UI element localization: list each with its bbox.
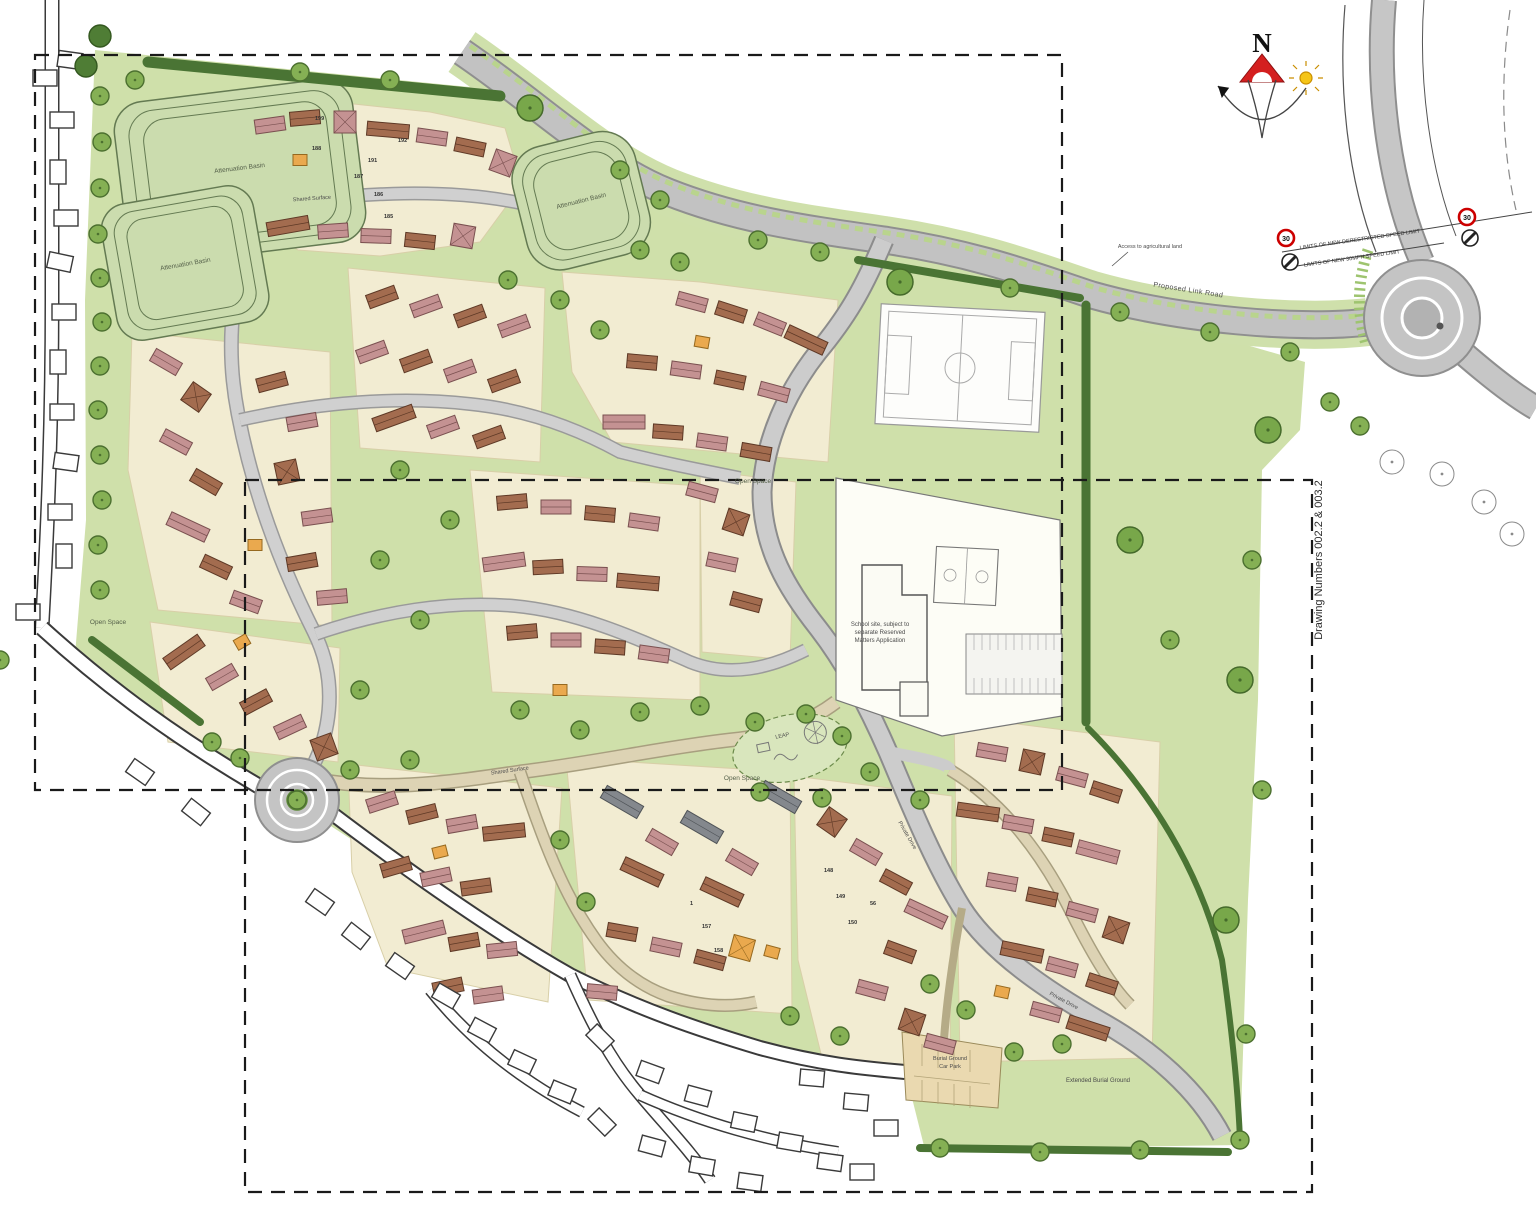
main-roundabout xyxy=(1364,260,1480,376)
svg-text:185: 185 xyxy=(384,214,393,220)
svg-text:188: 188 xyxy=(312,146,321,152)
school-car-park xyxy=(966,634,1062,694)
svg-text:186: 186 xyxy=(374,192,383,198)
site-plan-drawing: Attenuation Basin Attenuation Basin Atte… xyxy=(0,0,1536,1212)
school-note-line1: School site, subject to xyxy=(851,622,910,628)
burial-car-park-line2: Car Park xyxy=(939,1064,961,1070)
svg-text:157: 157 xyxy=(702,924,711,930)
svg-text:150: 150 xyxy=(848,920,857,926)
open-space-label: Open Space xyxy=(735,478,772,485)
speed-sign-30: 30 xyxy=(1278,230,1294,246)
svg-text:158: 158 xyxy=(714,948,723,954)
access-agricultural-label: Access to agricultural land xyxy=(1118,244,1182,250)
burial-car-park-line1: Burial Ground xyxy=(933,1056,967,1062)
extended-burial-ground-label: Extended Burial Ground xyxy=(1066,1078,1130,1084)
svg-text:30: 30 xyxy=(1282,236,1290,243)
speed-sign-30: 30 xyxy=(1459,209,1475,225)
svg-text:187: 187 xyxy=(354,174,363,180)
svg-text:148: 148 xyxy=(824,868,833,874)
school-site: School site, subject to separate Reserve… xyxy=(836,478,1062,736)
open-space-label: Open Space xyxy=(724,775,761,782)
svg-text:191: 191 xyxy=(368,158,377,164)
derestricted-sign xyxy=(1462,230,1478,246)
derestricted-sign xyxy=(1282,254,1298,270)
drawing-numbers-note: Drawing Numbers 002.2 & 003.2 xyxy=(1313,480,1325,640)
compass-north-letter: N xyxy=(1252,28,1272,58)
svg-text:149: 149 xyxy=(836,894,845,900)
school-note: School site, subject to separate Reserve… xyxy=(851,622,910,644)
site-access-roundabout xyxy=(255,758,339,842)
school-note-line3: Matters Application xyxy=(855,638,906,644)
svg-text:192: 192 xyxy=(398,138,407,144)
open-space-label: Open Space xyxy=(90,619,127,626)
masterplan-canvas: Attenuation Basin Attenuation Basin Atte… xyxy=(0,0,1536,1212)
svg-text:30: 30 xyxy=(1463,215,1471,222)
svg-text:199: 199 xyxy=(315,116,324,122)
attenuation-basin-2: Attenuation Basin xyxy=(97,182,273,345)
school-note-line2: separate Reserved xyxy=(855,630,906,636)
football-pitch xyxy=(875,304,1045,432)
